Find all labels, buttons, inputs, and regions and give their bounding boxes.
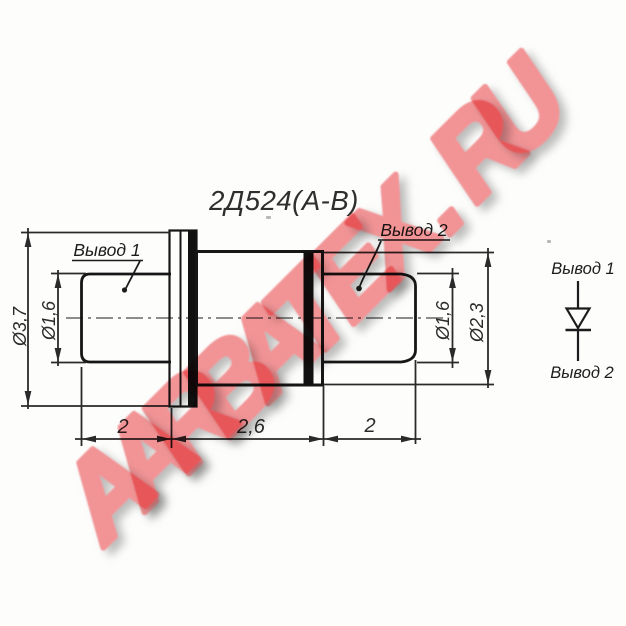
svg-text:Ø3,7: Ø3,7 bbox=[10, 306, 30, 347]
svg-text:Вывод 2: Вывод 2 bbox=[380, 220, 448, 240]
svg-text:Ø2,3: Ø2,3 bbox=[467, 303, 487, 343]
svg-text:2,6: 2,6 bbox=[236, 416, 266, 438]
svg-text:Ø1,6: Ø1,6 bbox=[39, 300, 59, 341]
svg-text:2Д524(А-В): 2Д524(А-В) bbox=[208, 185, 359, 216]
svg-text:2: 2 bbox=[116, 416, 128, 438]
svg-text:Ø1,6: Ø1,6 bbox=[433, 300, 453, 341]
svg-text:Вывод 1: Вывод 1 bbox=[73, 240, 140, 260]
svg-text:Вывод 1: Вывод 1 bbox=[551, 260, 614, 278]
svg-text:2: 2 bbox=[363, 415, 375, 437]
svg-text:Вывод 2: Вывод 2 bbox=[550, 364, 613, 382]
